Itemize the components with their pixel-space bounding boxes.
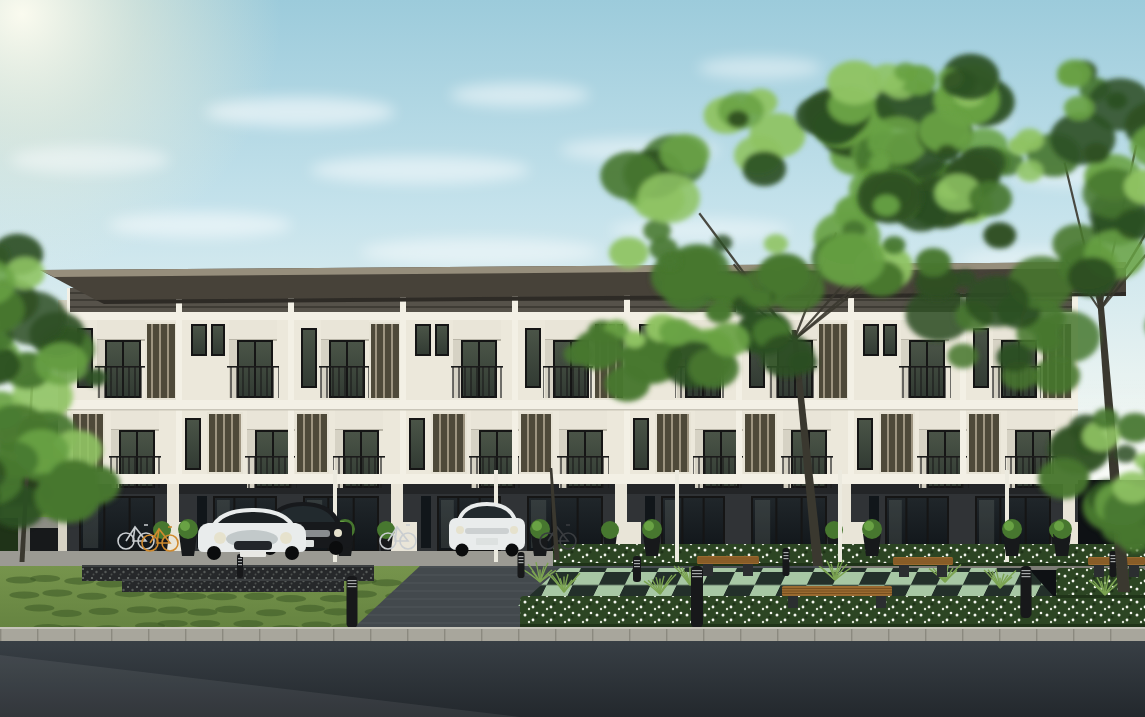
window-glass	[187, 420, 199, 468]
cloud	[108, 212, 292, 238]
foliage-blob	[742, 151, 786, 186]
bollard-ring	[519, 559, 524, 560]
curb-joint	[777, 629, 778, 641]
cloud	[10, 146, 170, 174]
planter-shrub-highlight	[864, 521, 874, 531]
bollard-ring	[1022, 576, 1031, 577]
curb-joint	[481, 629, 482, 641]
wheel	[285, 546, 299, 560]
balcony-railing	[543, 366, 595, 398]
flower-hedge	[520, 596, 1145, 627]
gabion-stone-wall	[82, 565, 374, 581]
planter-shrub-highlight	[1004, 521, 1014, 531]
curb-joint	[555, 629, 556, 641]
bollard-ring	[1111, 561, 1116, 562]
headlight	[456, 526, 464, 534]
grass-tuft	[244, 593, 274, 600]
hedge-base-shadow	[520, 624, 1145, 627]
railing-top-bar	[1005, 456, 1057, 458]
bollard-ring	[634, 563, 640, 564]
bollard-light	[237, 554, 243, 578]
bench-leg	[937, 565, 947, 577]
louver-slats	[433, 414, 465, 472]
bollard-ring	[634, 560, 640, 561]
bollard-light	[691, 566, 703, 628]
curb-joint	[999, 629, 1000, 641]
railing-top-bar	[95, 366, 147, 368]
scene-canvas	[0, 0, 1145, 717]
foliage-blob	[1017, 160, 1044, 182]
curb-joint	[851, 629, 852, 641]
curb-joint	[444, 629, 445, 641]
planter-shrub-highlight	[180, 521, 190, 531]
balcony-header	[559, 410, 607, 430]
grass-tuft	[127, 606, 157, 613]
bollard-ring	[348, 580, 357, 581]
curb-joint	[148, 629, 149, 641]
window-glass	[193, 326, 205, 354]
foliage-blob	[868, 154, 889, 171]
curb-joint	[1073, 629, 1074, 641]
louver-slats	[371, 324, 399, 398]
grass-tuft	[42, 589, 72, 596]
wheel	[456, 544, 469, 557]
grass-tuft	[24, 604, 54, 611]
bollard-ring	[238, 564, 242, 565]
foliage-blob	[937, 144, 958, 161]
railing-top-bar	[451, 366, 503, 368]
foliage-blob	[758, 253, 811, 295]
foliage-blob	[1064, 96, 1094, 120]
louver-slats	[521, 414, 551, 472]
cloud	[698, 57, 822, 79]
bollard-ring	[519, 562, 524, 563]
foliage-blob	[624, 331, 645, 348]
beam-shadow-line	[67, 409, 1078, 411]
cloud	[360, 238, 600, 266]
louver-slats	[881, 414, 913, 472]
bollard-ring	[784, 558, 789, 559]
porch-light-pole	[675, 470, 679, 562]
bench-leg	[899, 565, 909, 577]
bollard-ring	[348, 586, 357, 587]
grass-tuft	[256, 609, 286, 616]
railing-top-bar	[109, 456, 161, 458]
balcony-header	[453, 320, 501, 340]
foliage-blob	[915, 248, 951, 277]
balcony-header	[471, 410, 519, 430]
floor-beam	[67, 400, 1078, 410]
grass-tuft	[207, 593, 237, 600]
foliage-blob	[996, 343, 1032, 372]
louver-slats	[969, 414, 999, 472]
curb-joint	[185, 629, 186, 641]
foliage-blob	[965, 276, 1029, 327]
glass-reflection	[755, 500, 770, 548]
curb-joint	[296, 629, 297, 641]
grass-tuft	[9, 591, 39, 598]
grass-tuft	[372, 579, 402, 586]
foliage-blob	[1067, 257, 1117, 297]
balcony-header	[229, 320, 277, 340]
bollard-ring	[784, 555, 789, 556]
grille	[234, 541, 272, 550]
curb-joint	[222, 629, 223, 641]
foliage-blob	[659, 318, 693, 345]
window-glass	[417, 326, 429, 354]
foliage-blob	[609, 237, 648, 269]
foliage-blob	[637, 173, 700, 223]
balcony-header	[247, 410, 295, 430]
bollard-ring	[1111, 555, 1116, 556]
foliage-blob	[706, 301, 733, 323]
foliage-blob	[660, 134, 710, 174]
curb-joint	[518, 629, 519, 641]
railing-top-bar	[899, 366, 951, 368]
foliage-blob	[727, 110, 749, 127]
balcony-header	[919, 410, 967, 430]
curb-joint	[888, 629, 889, 641]
foliage-blob	[573, 330, 623, 370]
foliage-blob	[873, 195, 899, 216]
curb-joint	[333, 629, 334, 641]
hedge-base-shadow	[553, 563, 1145, 566]
foliage-blob	[818, 233, 885, 287]
balcony-header	[111, 410, 159, 430]
louver-slats	[657, 414, 689, 472]
curb-highlight	[0, 627, 1145, 629]
townhouse-rendering	[0, 0, 1145, 717]
planter-shrub-highlight	[532, 521, 542, 531]
grass-tuft	[276, 595, 306, 602]
cloud	[450, 83, 590, 107]
wheel	[207, 546, 221, 560]
curb-joint	[111, 629, 112, 641]
foliage-blob	[760, 334, 815, 378]
balcony-railing	[319, 366, 371, 398]
planter-shrub-highlight	[1054, 521, 1064, 531]
license-plate	[240, 551, 266, 557]
curb-joint	[814, 629, 815, 641]
headlight	[280, 532, 292, 544]
foliage-blob	[1093, 408, 1119, 429]
grass-tuft	[149, 592, 179, 599]
bollard-ring	[1022, 570, 1031, 571]
balcony-header	[321, 320, 369, 340]
gabion-top	[122, 579, 344, 581]
cloud	[610, 218, 790, 242]
louver-slats	[297, 414, 327, 472]
grille-chrome	[465, 528, 509, 534]
wheel	[506, 544, 519, 557]
window-glass	[411, 420, 423, 468]
grass-tuft	[177, 593, 207, 600]
grass-tuft	[96, 580, 126, 587]
window-glass	[635, 420, 647, 468]
curb-joint	[1036, 629, 1037, 641]
grass-tuft	[89, 608, 119, 615]
hedge-base-shadow	[1056, 595, 1145, 598]
foliage-blob	[894, 62, 917, 81]
planter-shrub-highlight	[644, 521, 654, 531]
grass-tuft	[158, 607, 188, 614]
louver-slats	[147, 324, 175, 398]
glass-reflection	[889, 500, 902, 548]
curb-joint	[592, 629, 593, 641]
foliage-blob	[708, 323, 750, 357]
curb-joint	[740, 629, 741, 641]
balcony-railing	[451, 366, 503, 398]
curb-joint	[629, 629, 630, 641]
louver-slats	[209, 414, 241, 472]
bollard-ring	[238, 561, 242, 562]
louver-slats	[819, 324, 847, 398]
bollard-ring	[692, 576, 702, 577]
grass-tuft	[77, 593, 107, 600]
curb-joint	[74, 629, 75, 641]
foliage-blob	[1033, 357, 1080, 395]
headlight	[334, 529, 342, 537]
balcony-railing	[899, 366, 951, 398]
foliage-blob	[35, 342, 89, 385]
glass-reflection	[979, 500, 994, 548]
grass-tuft	[295, 605, 325, 612]
railing-top-bar	[557, 456, 609, 458]
foliage-blob	[648, 347, 669, 364]
narrow-door-panel	[421, 496, 431, 548]
curb-joint	[370, 629, 371, 641]
foliage-blob	[969, 181, 1013, 216]
bench-leg	[703, 564, 713, 576]
headlight	[214, 532, 226, 544]
bollard-ring	[634, 566, 640, 567]
foliage-blob	[749, 289, 772, 308]
grass-tuft	[52, 610, 82, 617]
foliage-blob	[1038, 458, 1090, 499]
cloud	[205, 97, 395, 127]
balcony-header	[695, 410, 743, 430]
foliage-blob	[942, 69, 976, 96]
foliage-blob	[1114, 445, 1136, 463]
bollard-ring	[1022, 573, 1031, 574]
grass-tuft	[188, 609, 218, 616]
window-glass	[885, 326, 895, 354]
curb-joint	[703, 629, 704, 641]
curb-joint	[259, 629, 260, 641]
grass-tuft	[215, 606, 245, 613]
louver-slats	[745, 414, 775, 472]
curb-joint	[925, 629, 926, 641]
foliage-blob	[883, 236, 906, 254]
foliage-blob	[947, 343, 978, 368]
foliage-blob	[983, 222, 1016, 248]
window-glass	[859, 420, 871, 468]
balcony-header	[97, 320, 145, 340]
foliage-blob	[660, 253, 680, 269]
foliage-blob	[1015, 129, 1044, 152]
bollard-light	[633, 556, 641, 582]
window-glass	[527, 330, 539, 386]
bench-leg	[1129, 565, 1139, 577]
bench-leg	[788, 596, 798, 608]
railing-top-bar	[319, 366, 371, 368]
bollard-ring	[1111, 558, 1116, 559]
bollard-ring	[692, 573, 702, 574]
window-glass	[213, 326, 223, 354]
curb-joint	[666, 629, 667, 641]
headlight	[510, 526, 518, 534]
window-glass	[865, 326, 877, 354]
planter-shrub	[601, 521, 619, 539]
curb-joint	[407, 629, 408, 641]
foliage-blob	[85, 368, 107, 386]
bench-leg	[743, 564, 753, 576]
grass-tuft	[233, 620, 263, 627]
foliage-blob	[1057, 59, 1092, 87]
bench-leg	[876, 596, 886, 608]
balcony-header	[335, 410, 383, 430]
window-glass	[303, 330, 315, 386]
license-plate	[476, 538, 498, 545]
curb-joint	[37, 629, 38, 641]
foliage-blob	[71, 465, 120, 505]
floor-beam	[67, 474, 1078, 484]
bollard-light	[518, 552, 525, 578]
foliage-blob	[764, 234, 788, 253]
foliage-blob	[1050, 112, 1116, 165]
curb-joint	[962, 629, 963, 641]
bench-leg	[1094, 565, 1104, 577]
grass-tuft	[190, 620, 220, 627]
road	[0, 627, 1145, 717]
balcony-header	[1007, 410, 1055, 430]
planter-shrub	[377, 521, 395, 539]
bollard-ring	[784, 552, 789, 553]
curb-joint	[1110, 629, 1111, 641]
bollard-ring	[348, 583, 357, 584]
porch-light-pole	[838, 470, 842, 562]
grass-tuft	[320, 595, 350, 602]
grass-tuft	[30, 575, 60, 582]
grass-tuft	[158, 620, 188, 627]
balcony-railing	[227, 366, 279, 398]
wheel	[329, 541, 343, 555]
bollard-ring	[519, 556, 524, 557]
fin-wall-step	[403, 522, 417, 556]
cloud	[310, 156, 530, 184]
gabion-top	[82, 565, 374, 567]
bollard-ring	[238, 558, 242, 559]
curb-joint	[0, 629, 1, 641]
curb	[0, 627, 1145, 642]
window-glass	[437, 326, 447, 354]
bollard-ring	[692, 570, 702, 571]
railing-top-bar	[333, 456, 385, 458]
railing-top-bar	[227, 366, 279, 368]
